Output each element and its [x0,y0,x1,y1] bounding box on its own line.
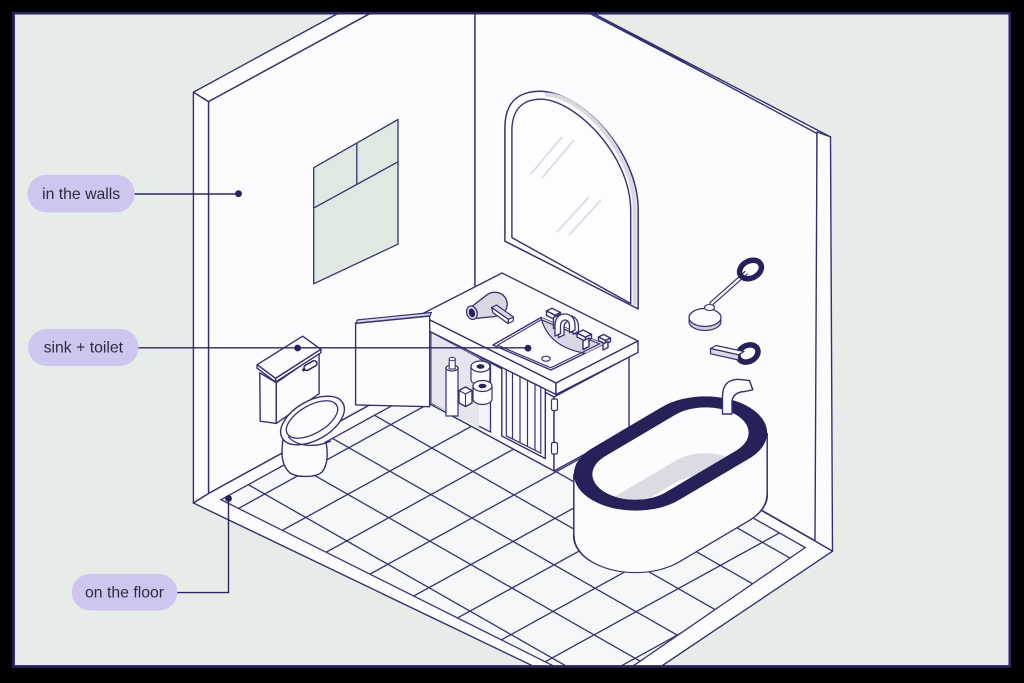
svg-text:sink + toilet: sink + toilet [44,340,124,357]
svg-text:in the walls: in the walls [42,186,120,203]
svg-text:on the floor: on the floor [85,584,164,601]
